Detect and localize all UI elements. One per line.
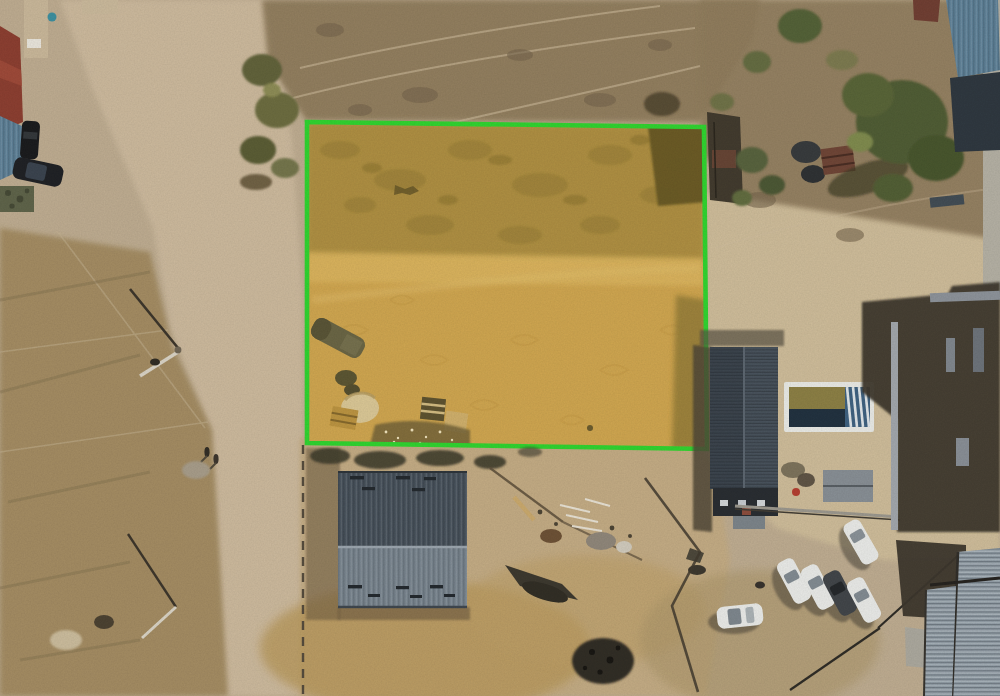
grain-light-overlay [0,0,1000,696]
aerial-photo [0,0,1000,696]
aerial-photo-stage [0,0,1000,696]
